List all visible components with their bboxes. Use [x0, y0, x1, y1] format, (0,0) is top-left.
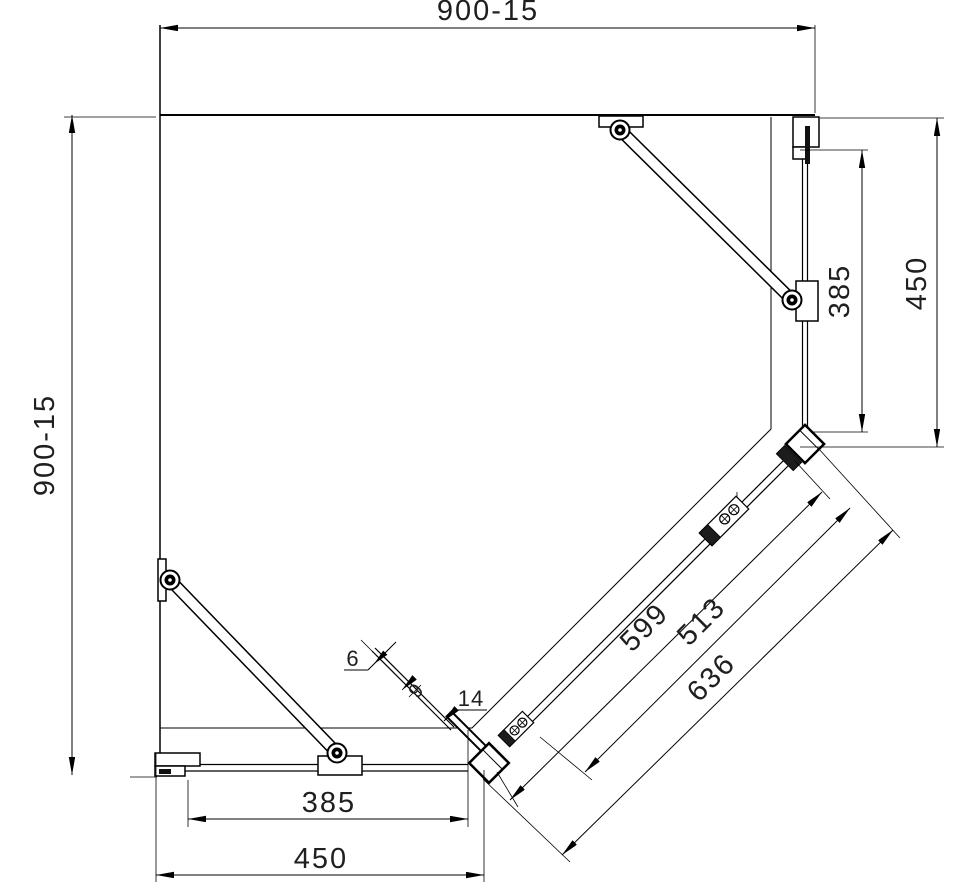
bottom-profile-jaw	[159, 769, 171, 774]
door-pivot-block	[469, 743, 509, 783]
dim-label-door-gap: 9	[404, 680, 428, 703]
hinge-icon	[161, 571, 180, 590]
hinge-icon	[783, 291, 802, 310]
right-clamp-jaw	[805, 126, 810, 164]
dim-label-bottom-glass: 385	[302, 787, 356, 819]
dim-label-diagonal-overall: 636	[681, 647, 742, 708]
dim-label-right-side: 450	[901, 256, 933, 310]
door-hinge-hardware	[498, 711, 533, 746]
diagonal-fixed-panel	[524, 455, 794, 725]
dim-label-top-width: 900-15	[437, 0, 539, 27]
diagonal-glass-edge	[529, 460, 794, 725]
bottom-glass-panel	[155, 753, 468, 776]
hinge-icon	[328, 744, 347, 763]
support-bar-left	[166, 576, 341, 756]
dim-label-left-height: 900-15	[29, 394, 61, 496]
dim-label-glass-thickness: 6	[346, 646, 359, 671]
technical-drawing-canvas: 900-15 900-15 385 450 385 450 599 513 63…	[0, 0, 978, 894]
door-open	[361, 640, 509, 783]
shower-enclosure-plan-svg: 900-15 900-15 385 450 385 450 599 513 63…	[0, 0, 978, 894]
dim-line-diagonal-overall	[562, 530, 893, 855]
dim-label-bottom-side: 450	[294, 843, 348, 875]
diagonal-latch-hardware	[699, 496, 748, 545]
right-wall-clamp-step	[793, 147, 807, 159]
bottom-wall-profile	[155, 753, 200, 766]
hinge-icon	[611, 121, 630, 140]
diagonal-glass-edge	[524, 455, 789, 720]
dim-label-diagonal-glass: 599	[614, 597, 675, 658]
support-bar-top	[616, 126, 796, 304]
door-glass-tip-ext	[361, 640, 372, 651]
dim-label-diagonal-inner: 513	[671, 591, 732, 652]
dim-label-profile-width: 14	[458, 686, 484, 711]
right-glass-panel	[793, 117, 819, 430]
dim-label-right-glass: 385	[824, 264, 856, 318]
